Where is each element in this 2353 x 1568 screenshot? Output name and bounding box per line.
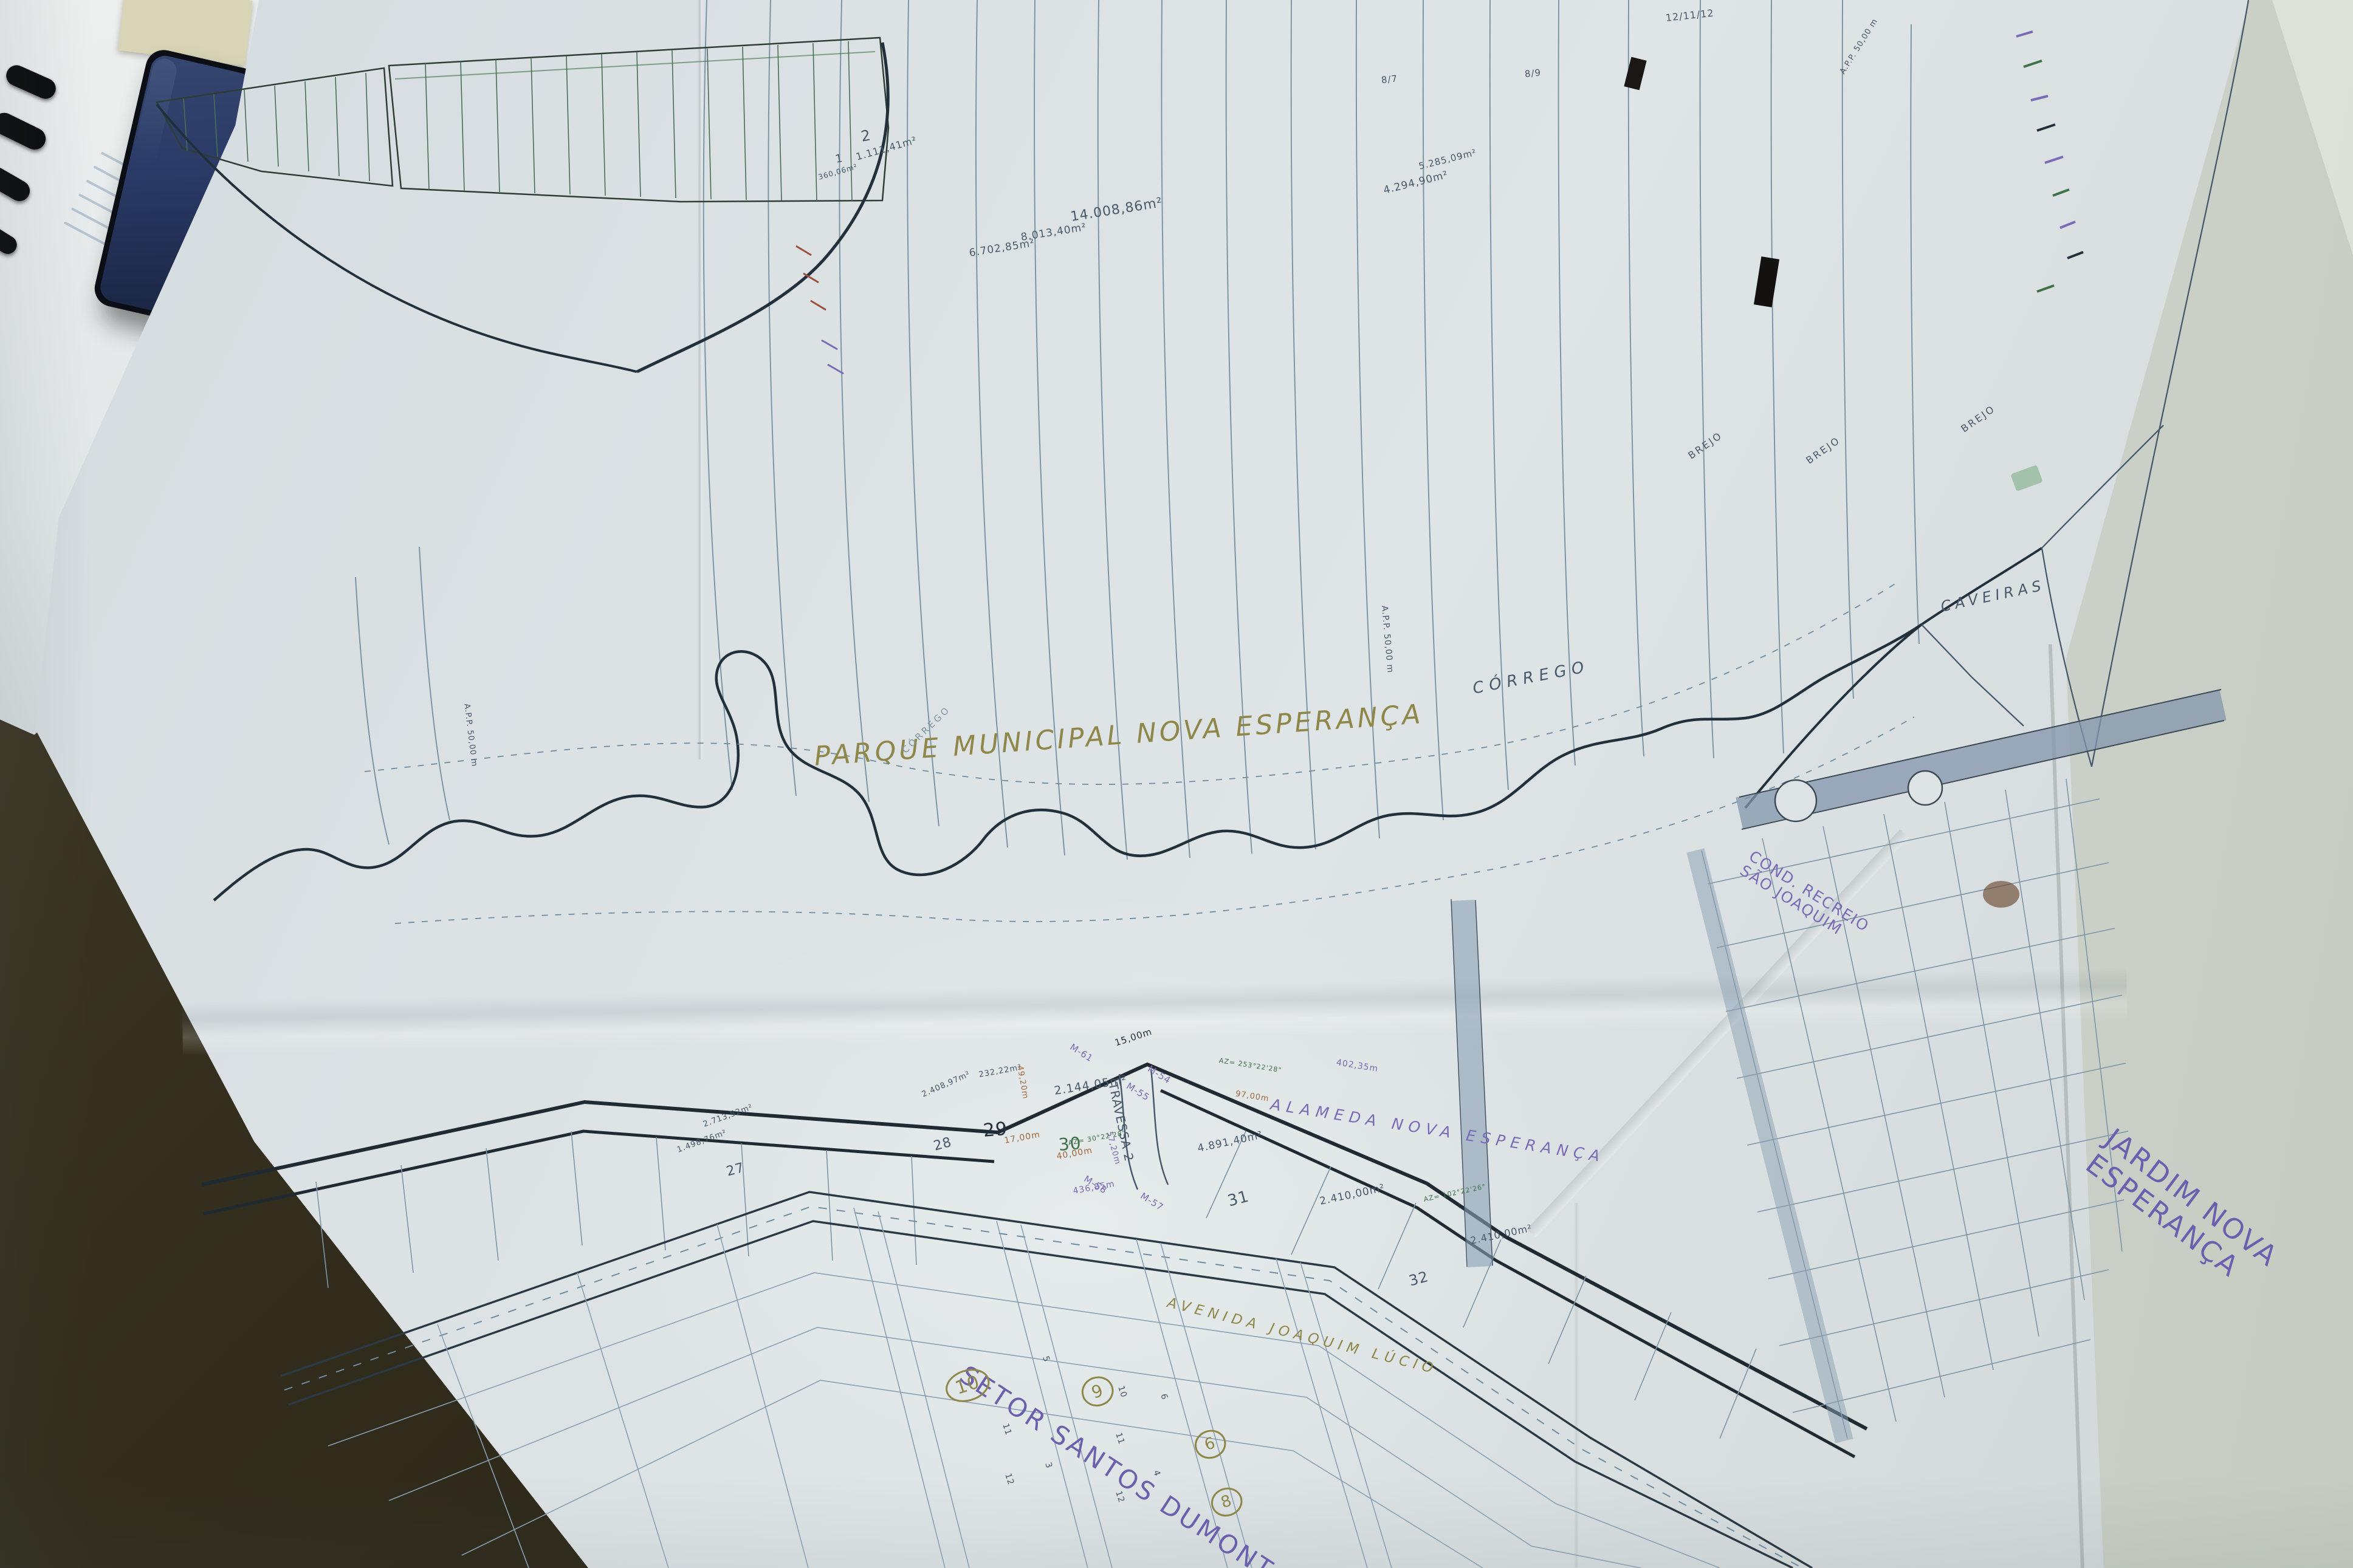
- app-label-3: A.P.P. 50,00 m: [1839, 17, 1880, 76]
- quadra-32: 32: [1407, 1268, 1431, 1289]
- marker-m61: M-61: [1068, 1042, 1094, 1064]
- date-note: 12/11/12: [1665, 7, 1714, 23]
- app-label-2: A.P.P. 50,00 m: [1379, 605, 1394, 674]
- lot-5: 5: [1040, 1355, 1051, 1363]
- marker-m57: M-57: [1138, 1191, 1165, 1213]
- quadra-2: 2: [860, 127, 873, 145]
- brejo-label-2: BREJO: [1804, 435, 1843, 467]
- quadra-27: 27: [725, 1160, 746, 1180]
- brejo-label-3: BREJO: [1959, 403, 1997, 435]
- meas-97m: 97,00m: [1235, 1090, 1269, 1104]
- lot-11b: 11: [1000, 1422, 1013, 1437]
- quadra-31: 31: [1226, 1188, 1251, 1211]
- area-2410-a: 2.410,00m²: [1319, 1183, 1386, 1208]
- meas-15m: 15,00m: [1114, 1026, 1154, 1048]
- alameda-label: ALAMEDA NOVA ESPERANÇA: [1269, 1096, 1606, 1166]
- lot-4: 4: [1151, 1470, 1162, 1478]
- photo-scene: PARQUE MUNICIPAL NOVA ESPERANÇASETOR SAN…: [0, 0, 2353, 1568]
- area-6702: 6.702,85m²: [969, 238, 1036, 259]
- circle-block-8: 8: [1207, 1484, 1246, 1521]
- caveiras-label: CAVEIRAS: [1940, 577, 2047, 615]
- azimuth-3: AZ= 102°22'26": [1423, 1183, 1486, 1204]
- area-5285: 5.285,09m²: [1418, 148, 1478, 172]
- quadra-28: 28: [932, 1135, 953, 1155]
- circle-block-6: 6: [1191, 1426, 1230, 1463]
- marker-m55: M-55: [1124, 1081, 1151, 1103]
- lot-12b: 12: [1003, 1473, 1015, 1487]
- area-4294: 4.294,90m²: [1382, 169, 1449, 196]
- lot-3: 3: [1043, 1462, 1054, 1470]
- ref-8-9: 8/9: [1524, 67, 1542, 80]
- corrego-label: CÓRREGO: [1471, 658, 1591, 698]
- area-2410-b: 2.410,00m²: [1469, 1223, 1533, 1247]
- ref-8-7: 8/7: [1381, 74, 1398, 86]
- meas-402m: 402,35m: [1336, 1058, 1379, 1074]
- area-4891: 4.891,40m²: [1197, 1129, 1264, 1154]
- app-label-1: A.P.P. 50,00 m: [461, 704, 478, 768]
- area-1498: 1.498,76m²: [676, 1129, 729, 1155]
- area-360: 360,06m²: [818, 163, 859, 182]
- brejo-label-1: BREJO: [1686, 430, 1725, 462]
- quadra-1: 1: [834, 152, 844, 166]
- cond-recreio-label: COND. RECREIO SÃO JOAQUIM: [1737, 847, 1872, 950]
- azimuth-2: AZ= 253°22'28": [1218, 1057, 1282, 1074]
- lot-11a: 11: [1113, 1432, 1126, 1446]
- circle-block-9: 9: [1077, 1372, 1117, 1411]
- lot-10: 10: [1116, 1385, 1128, 1399]
- meas-49m: 49,20m: [1014, 1065, 1029, 1100]
- area-14008: 14.008,86m²: [1070, 196, 1164, 225]
- meas-436m: 436,85m: [1072, 1180, 1115, 1197]
- area-2408: 2.408,97m²: [921, 1070, 972, 1100]
- map-labels-layer: PARQUE MUNICIPAL NOVA ESPERANÇASETOR SAN…: [0, 0, 2353, 1568]
- lot-6: 6: [1158, 1392, 1169, 1401]
- avenida-label: AVENIDA JOAQUIM LÚCIO: [1165, 1295, 1438, 1378]
- meas-17m: 17,00m: [1004, 1131, 1042, 1146]
- marker-m54: M-54: [1146, 1064, 1172, 1086]
- jardim-panel-title: JARDIM NOVA ESPERANÇA: [2080, 1123, 2284, 1298]
- area-2713: 2.713,52m²: [702, 1104, 754, 1130]
- park-title: PARQUE MUNICIPAL NOVA ESPERANÇA: [813, 699, 1424, 772]
